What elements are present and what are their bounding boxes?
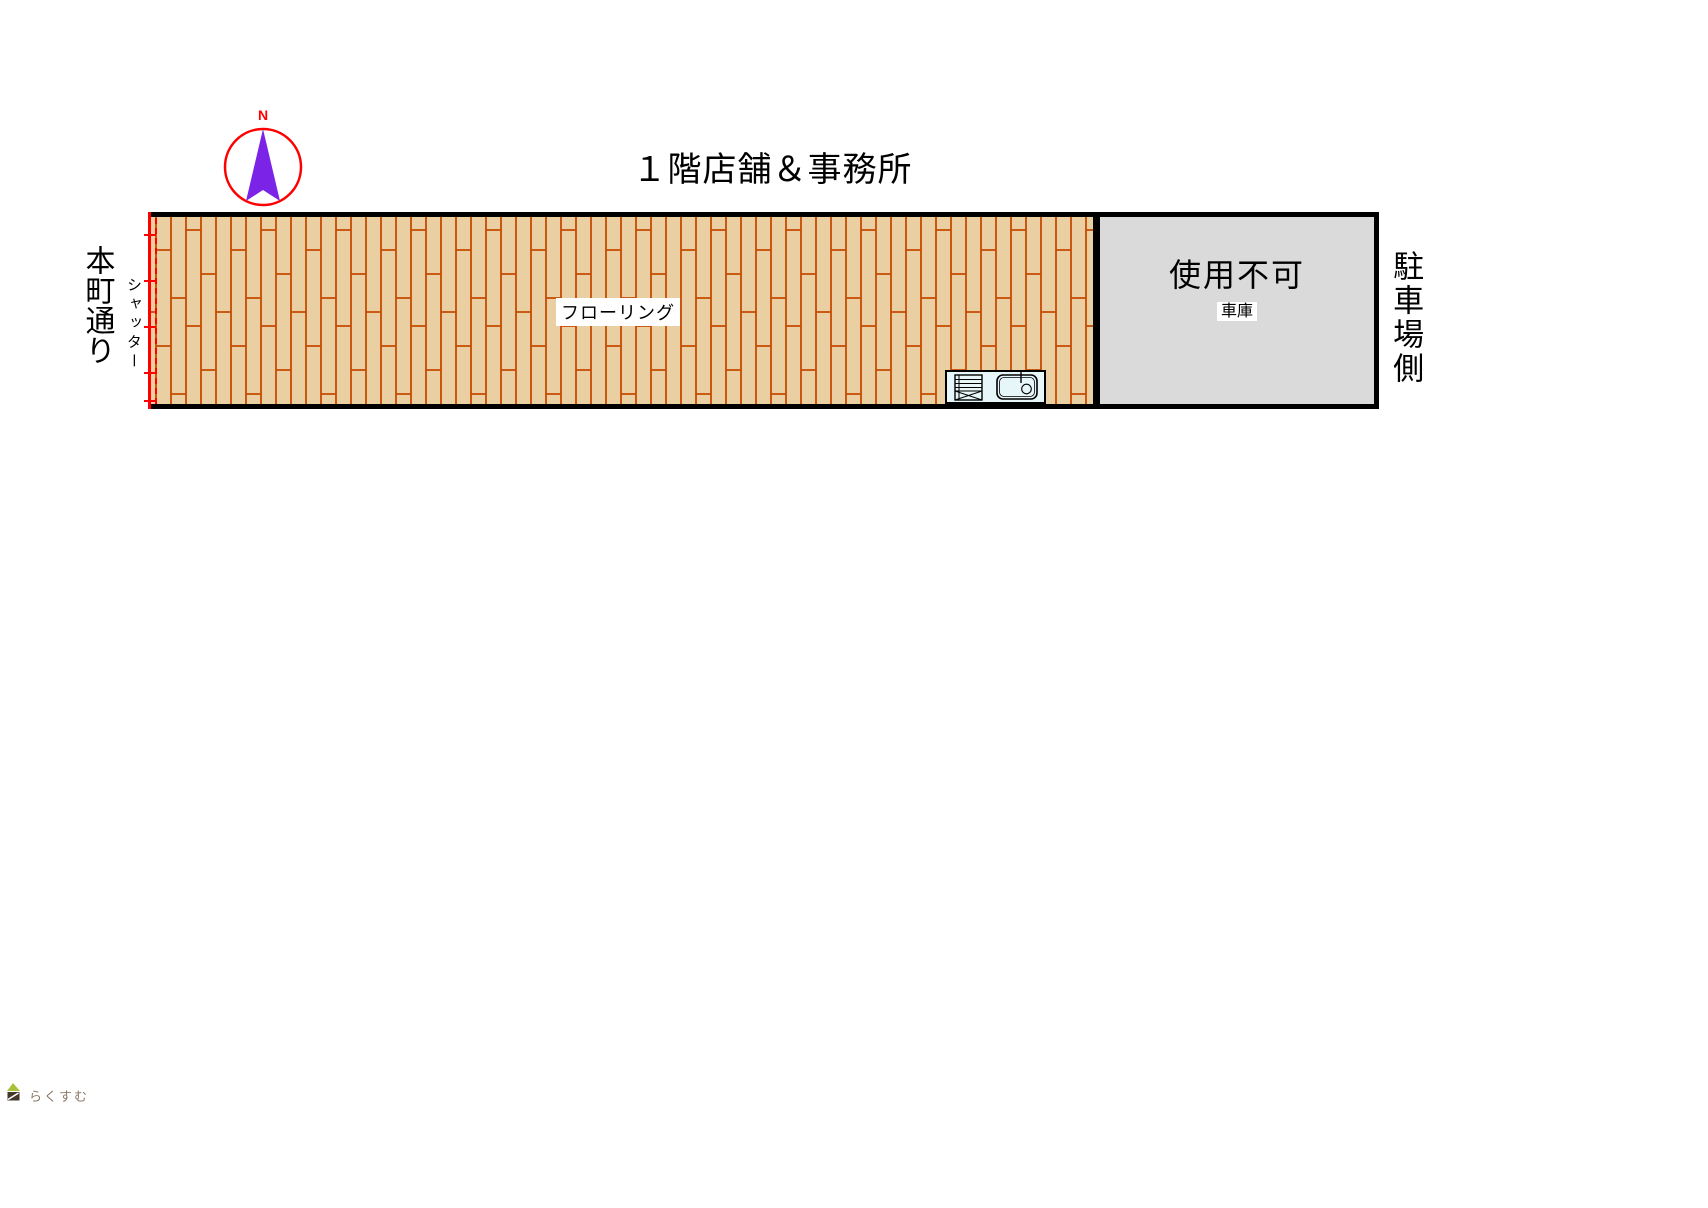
logo-leaf-icon [7,1083,20,1091]
shutter-tick [144,400,156,402]
watermark-text: らくすむ [29,1086,89,1105]
page-title: １階店舗＆事務所 [600,152,945,189]
wall-top [149,212,1379,217]
flooring-label: フローリング [556,298,680,326]
wall-divider [1093,212,1100,409]
garage-name-text: 車庫 [1217,302,1257,321]
garage-name-label: 車庫 [1100,297,1374,321]
shutter-tick [144,372,156,374]
north-needle-icon [246,129,280,201]
garage-status-label: 使用不可 [1100,250,1374,296]
shutter-tick [144,234,156,236]
compass: N [218,104,308,209]
floorplan-canvas: １階店舗＆事務所 N 本町通り シャッター フローリング 使用不可 車庫 [0,0,1708,1208]
kitchen-unit [945,370,1046,404]
shutter-tick [144,280,156,282]
logo-house-icon [5,1082,23,1102]
wall-right [1374,212,1379,409]
shutter-line [148,212,151,409]
wall-bottom [149,404,1379,409]
parking-side-label: 駐車場側 [1388,250,1422,386]
shutter-dashed-line [155,218,157,404]
compass-north-label: N [258,107,268,123]
watermark-logo: らくすむ [5,1082,205,1104]
shutter-label: シャッター [126,277,141,372]
shutter-tick [144,326,156,328]
street-label: 本町通り [81,245,113,365]
